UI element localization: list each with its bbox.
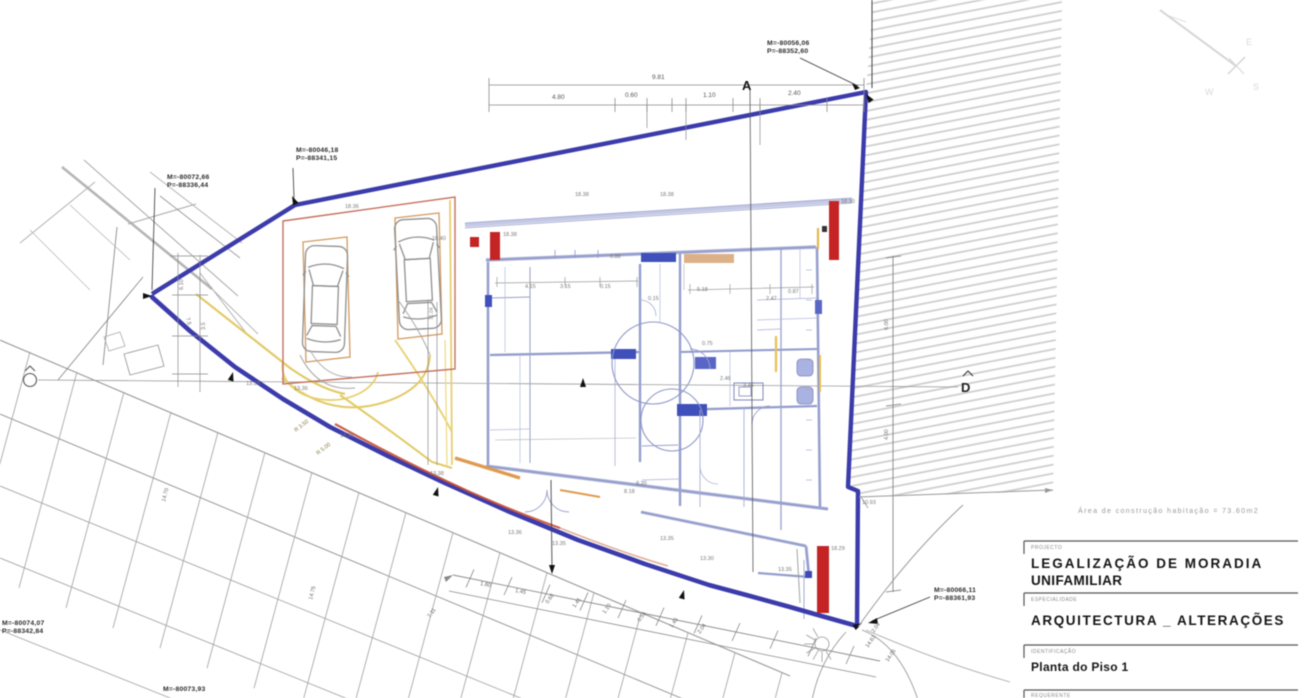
svg-text:2.47: 2.47 <box>766 296 777 302</box>
svg-text:ESPECIALIDADE: ESPECIALIDADE <box>1031 597 1077 603</box>
svg-text:0.87: 0.87 <box>788 289 799 295</box>
svg-text:18.38: 18.38 <box>575 192 589 198</box>
svg-text:PROJECTO: PROJECTO <box>1031 545 1062 551</box>
svg-text:D: D <box>961 380 970 395</box>
svg-text:2.04: 2.04 <box>871 622 882 634</box>
svg-text:W: W <box>1205 87 1214 97</box>
svg-text:M=-80046,18: M=-80046,18 <box>296 147 338 154</box>
svg-text:13.38: 13.38 <box>430 471 444 477</box>
svg-text:8.20: 8.20 <box>636 481 647 487</box>
svg-text:13.36: 13.36 <box>294 386 308 392</box>
svg-text:M=-80056,06: M=-80056,06 <box>767 40 809 47</box>
svg-text:P=-88342,84: P=-88342,84 <box>2 628 43 635</box>
svg-text:ARQUITECTURA _ ALTERAÇÕES: ARQUITECTURA _ ALTERAÇÕES <box>1031 613 1285 628</box>
svg-text:18.38: 18.38 <box>660 192 674 198</box>
svg-text:0.88: 0.88 <box>610 254 621 260</box>
svg-text:10.93: 10.93 <box>862 500 876 506</box>
svg-text:0.75: 0.75 <box>702 341 713 347</box>
svg-text:13.35: 13.35 <box>552 541 566 547</box>
svg-text:14.75: 14.75 <box>308 586 317 601</box>
svg-text:0.68: 0.68 <box>545 593 556 605</box>
svg-text:2.46: 2.46 <box>720 376 731 382</box>
svg-text:1.10: 1.10 <box>602 603 613 615</box>
svg-text:LEGALIZAÇÃO DE MORADIA: LEGALIZAÇÃO DE MORADIA <box>1031 556 1263 571</box>
svg-text:13.36: 13.36 <box>508 530 522 536</box>
svg-text:18.30: 18.30 <box>841 199 855 205</box>
svg-text:71.04: 71.04 <box>429 307 435 320</box>
svg-text:1.45: 1.45 <box>515 588 527 596</box>
svg-text:1.10: 1.10 <box>703 92 716 99</box>
svg-text:3.15: 3.15 <box>560 284 571 290</box>
svg-text:Área de construção habitação =: Área de construção habitação = 73.60m2 <box>1078 506 1259 515</box>
svg-text:P=-88352,60: P=-88352,60 <box>767 48 808 55</box>
svg-text:6.10: 6.10 <box>179 279 185 290</box>
svg-text:IDENTIFICAÇÃO: IDENTIFICAÇÃO <box>1031 648 1076 655</box>
svg-text:14.63: 14.63 <box>865 634 878 649</box>
svg-text:14.70: 14.70 <box>161 488 170 503</box>
svg-text:4.80: 4.80 <box>552 94 565 101</box>
svg-text:M=-80072,66: M=-80072,66 <box>167 174 209 181</box>
svg-text:13.35: 13.35 <box>660 536 674 542</box>
svg-text:E: E <box>1246 37 1252 47</box>
svg-text:REQUERENTE: REQUERENTE <box>1031 693 1071 698</box>
svg-text:A: A <box>742 78 752 93</box>
svg-text:3.5: 3.5 <box>201 322 207 330</box>
svg-text:7.11: 7.11 <box>427 607 438 619</box>
svg-text:6.00: 6.00 <box>884 319 890 330</box>
svg-text:R 3.50: R 3.50 <box>294 419 310 434</box>
svg-text:13.35: 13.35 <box>778 567 792 573</box>
svg-text:R 5.00: R 5.00 <box>316 442 332 457</box>
svg-text:18.40: 18.40 <box>432 236 446 242</box>
svg-text:0.15: 0.15 <box>648 296 659 302</box>
svg-text:4.15: 4.15 <box>525 284 536 290</box>
svg-text:13.30: 13.30 <box>700 556 714 562</box>
svg-text:M=-80073,93: M=-80073,93 <box>163 686 205 693</box>
svg-text:8.18: 8.18 <box>624 489 635 495</box>
svg-text:P=-88336,44: P=-88336,44 <box>167 182 208 189</box>
svg-text:UNIFAMILIAR: UNIFAMILIAR <box>1031 573 1122 588</box>
svg-text:M=-80074,07: M=-80074,07 <box>2 620 44 627</box>
svg-text:0.15: 0.15 <box>600 284 611 290</box>
svg-text:P=-88361,93: P=-88361,93 <box>934 595 975 602</box>
svg-text:9.81: 9.81 <box>652 74 665 81</box>
svg-text:18.36: 18.36 <box>345 204 359 210</box>
svg-text:4.00: 4.00 <box>884 429 890 440</box>
svg-text:18.29: 18.29 <box>831 546 845 552</box>
svg-text:1.80: 1.80 <box>480 581 492 589</box>
svg-text:Planta do Piso 1: Planta do Piso 1 <box>1031 660 1129 674</box>
svg-text:3.46: 3.46 <box>743 383 754 389</box>
svg-text:M=-80066,11: M=-80066,11 <box>934 587 976 594</box>
svg-text:13.38: 13.38 <box>246 381 260 387</box>
svg-text:S: S <box>1253 82 1259 92</box>
svg-text:P=-88341,15: P=-88341,15 <box>296 155 337 162</box>
svg-text:18.38: 18.38 <box>503 232 517 238</box>
svg-text:5.18: 5.18 <box>697 287 708 293</box>
svg-text:0.60: 0.60 <box>625 92 638 99</box>
svg-text:13.36: 13.36 <box>340 433 354 439</box>
svg-text:2.40: 2.40 <box>788 90 801 97</box>
